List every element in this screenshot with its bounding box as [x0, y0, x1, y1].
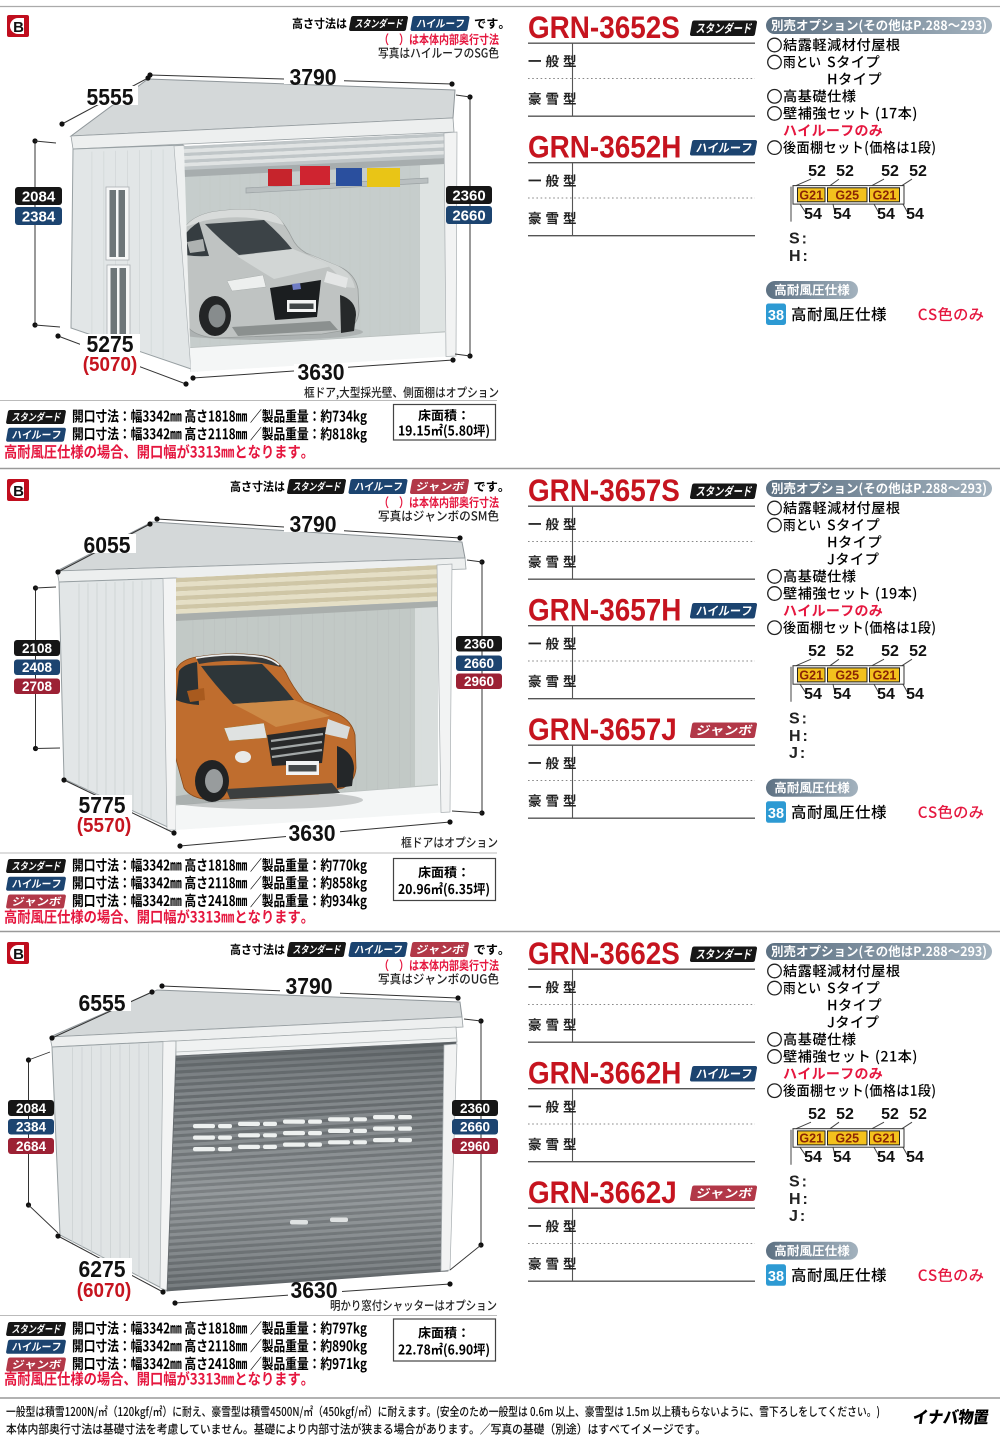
- svg-text:2408: 2408: [22, 660, 53, 675]
- svg-text:5555: 5555: [86, 84, 133, 110]
- svg-text:54: 54: [804, 206, 822, 223]
- svg-text:H:: H:: [789, 1191, 810, 1208]
- svg-text:G21: G21: [799, 188, 823, 202]
- svg-text:54: 54: [877, 1149, 895, 1166]
- svg-text:6055: 6055: [83, 532, 130, 558]
- svg-text:54: 54: [877, 686, 895, 703]
- svg-text:2360: 2360: [452, 187, 485, 204]
- svg-text:GRN-3662H: GRN-3662H: [528, 1056, 681, 1091]
- svg-text:3630: 3630: [297, 359, 344, 385]
- svg-text:J:: J:: [789, 1208, 807, 1225]
- svg-text:54: 54: [906, 206, 924, 223]
- svg-text:52: 52: [836, 643, 854, 660]
- svg-text:2384: 2384: [16, 1120, 47, 1135]
- svg-text:H:: H:: [789, 248, 810, 265]
- svg-text:GRN-3652S: GRN-3652S: [528, 10, 680, 45]
- svg-text:G25: G25: [835, 1132, 859, 1146]
- svg-text:52: 52: [909, 643, 927, 660]
- svg-text:52: 52: [808, 643, 826, 660]
- svg-text:54: 54: [833, 686, 851, 703]
- svg-text:54: 54: [877, 206, 895, 223]
- svg-text:GRN-3662S: GRN-3662S: [528, 936, 680, 971]
- svg-text:52: 52: [909, 163, 927, 180]
- svg-text:52: 52: [836, 1106, 854, 1123]
- svg-text:J:: J:: [789, 745, 807, 762]
- svg-text:G25: G25: [835, 669, 859, 683]
- svg-text:52: 52: [909, 1106, 927, 1123]
- svg-text:2684: 2684: [16, 1139, 47, 1154]
- svg-text:2660: 2660: [452, 207, 485, 224]
- svg-text:GRN-3652H: GRN-3652H: [528, 130, 681, 165]
- svg-text:G21: G21: [873, 1132, 897, 1146]
- svg-text:S:: S:: [789, 711, 809, 728]
- svg-text:3790: 3790: [289, 64, 336, 90]
- svg-text:G21: G21: [873, 669, 897, 683]
- svg-text:B: B: [13, 19, 24, 36]
- svg-text:52: 52: [836, 163, 854, 180]
- svg-text:38: 38: [768, 308, 784, 324]
- svg-text:2084: 2084: [22, 188, 56, 205]
- svg-text:6275: 6275: [78, 1256, 125, 1282]
- svg-text:54: 54: [833, 1149, 851, 1166]
- svg-text:2660: 2660: [460, 1120, 490, 1135]
- svg-text:54: 54: [833, 206, 851, 223]
- svg-text:2360: 2360: [460, 1101, 490, 1116]
- svg-text:52: 52: [881, 1106, 899, 1123]
- svg-text:2960: 2960: [464, 674, 494, 689]
- svg-text:S:: S:: [789, 1174, 809, 1191]
- svg-text:GRN-3657J: GRN-3657J: [528, 712, 677, 747]
- svg-text:GRN-3662J: GRN-3662J: [528, 1175, 677, 1210]
- svg-text:3630: 3630: [290, 1277, 337, 1303]
- svg-text:54: 54: [906, 1149, 924, 1166]
- svg-text:B: B: [13, 946, 24, 963]
- svg-text:6555: 6555: [78, 990, 125, 1016]
- svg-text:54: 54: [906, 686, 924, 703]
- svg-text:38: 38: [768, 806, 784, 822]
- svg-text:GRN-3657S: GRN-3657S: [528, 473, 680, 508]
- svg-text:(5570): (5570): [77, 814, 132, 837]
- svg-text:52: 52: [808, 1106, 826, 1123]
- svg-text:54: 54: [804, 686, 822, 703]
- svg-text:52: 52: [881, 163, 899, 180]
- svg-text:GRN-3657H: GRN-3657H: [528, 593, 681, 628]
- svg-text:(6070): (6070): [77, 1279, 132, 1302]
- svg-text:2360: 2360: [464, 637, 494, 652]
- svg-text:H:: H:: [789, 728, 810, 745]
- svg-text:52: 52: [881, 643, 899, 660]
- svg-text:54: 54: [804, 1149, 822, 1166]
- svg-text:2384: 2384: [22, 208, 56, 225]
- svg-text:B: B: [13, 483, 24, 500]
- svg-text:S:: S:: [789, 231, 809, 248]
- svg-text:3790: 3790: [289, 511, 336, 537]
- svg-text:2960: 2960: [460, 1139, 490, 1154]
- svg-text:3630: 3630: [288, 820, 335, 846]
- svg-text:G21: G21: [873, 188, 897, 202]
- svg-text:G21: G21: [799, 669, 823, 683]
- svg-text:G25: G25: [835, 188, 859, 202]
- svg-text:38: 38: [768, 1269, 784, 1285]
- svg-text:2708: 2708: [22, 679, 53, 694]
- svg-text:2108: 2108: [22, 641, 53, 656]
- svg-text:2084: 2084: [16, 1101, 47, 1116]
- svg-text:52: 52: [808, 163, 826, 180]
- svg-text:(5070): (5070): [83, 353, 138, 376]
- svg-text:G21: G21: [799, 1132, 823, 1146]
- svg-text:2660: 2660: [464, 656, 494, 671]
- svg-text:3790: 3790: [285, 973, 332, 999]
